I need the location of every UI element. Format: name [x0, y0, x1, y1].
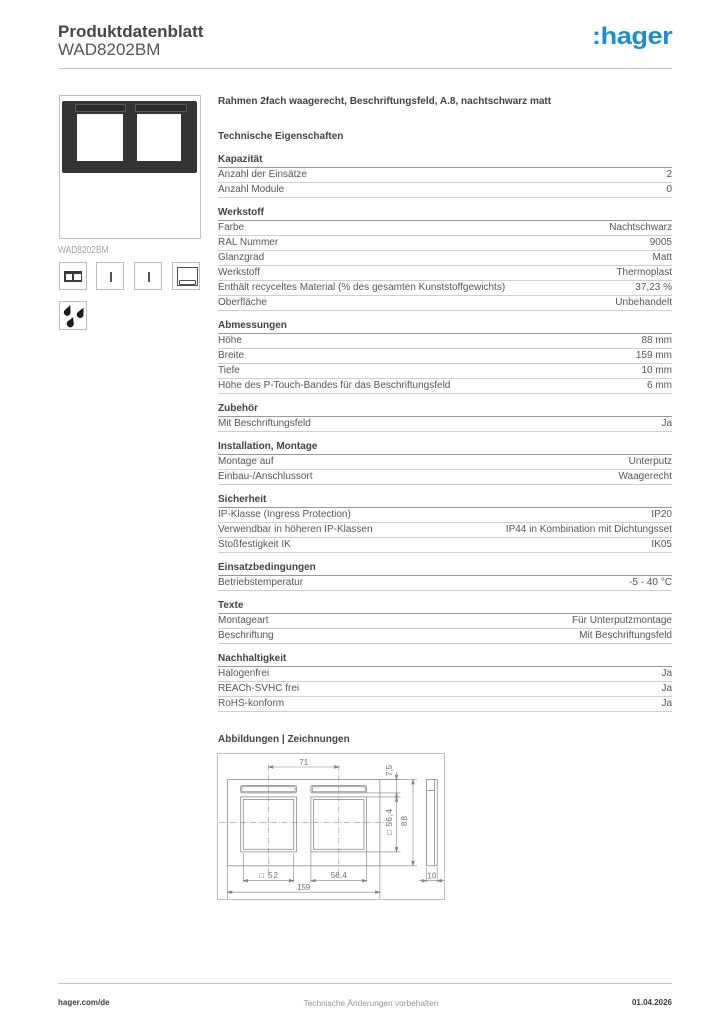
- svg-text:56,4: 56,4: [330, 871, 347, 880]
- svg-text:10: 10: [427, 871, 437, 880]
- svg-text:□ 56,4: □ 56,4: [385, 808, 394, 835]
- svg-text:71: 71: [299, 758, 309, 767]
- svg-text:88: 88: [399, 815, 408, 826]
- svg-text:□ 52: □ 52: [259, 871, 279, 880]
- svg-text:7,5: 7,5: [384, 764, 393, 776]
- svg-text:159: 159: [297, 882, 311, 891]
